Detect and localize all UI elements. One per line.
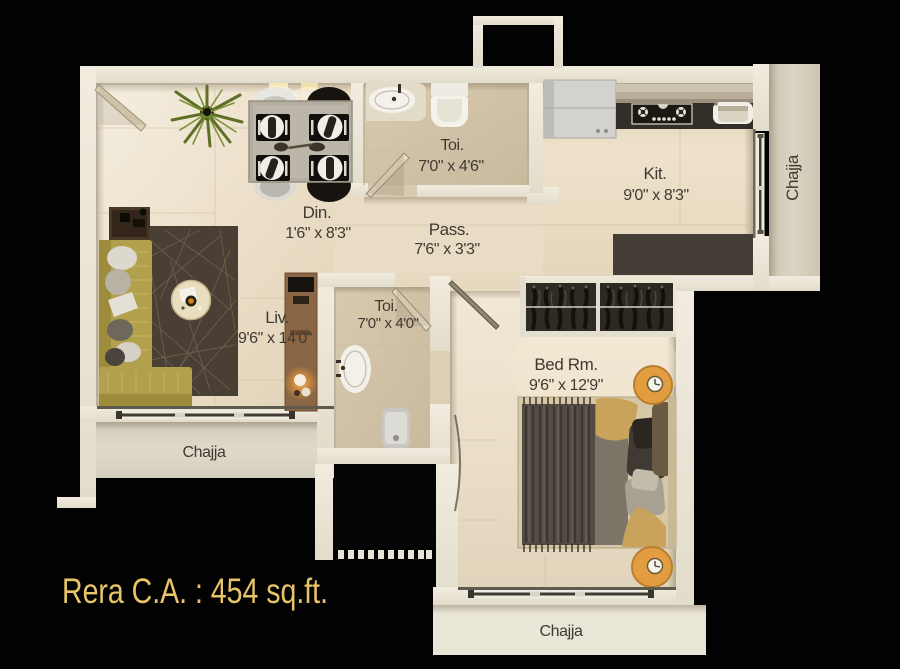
svg-text:9'6" x 12'9": 9'6" x 12'9" bbox=[529, 377, 603, 394]
svg-text:Rera C.A. : 454 sq.ft.: Rera C.A. : 454 sq.ft. bbox=[62, 572, 328, 611]
svg-text:9'0" x 8'3": 9'0" x 8'3" bbox=[623, 187, 689, 204]
svg-text:Din.: Din. bbox=[303, 203, 332, 222]
svg-text:Kit.: Kit. bbox=[644, 164, 667, 183]
svg-text:7'0" x 4'6": 7'0" x 4'6" bbox=[418, 158, 484, 175]
svg-text:Bed Rm.: Bed Rm. bbox=[534, 355, 597, 374]
svg-text:Chajja: Chajja bbox=[783, 154, 802, 201]
svg-text:7'0" x 4'0": 7'0" x 4'0" bbox=[357, 315, 418, 332]
svg-text:1'6" x 8'3": 1'6" x 8'3" bbox=[285, 225, 351, 242]
svg-text:7'6" x 3'3": 7'6" x 3'3" bbox=[414, 241, 480, 258]
svg-text:Liv.: Liv. bbox=[265, 308, 289, 327]
svg-text:9'6" x 14'0": 9'6" x 14'0" bbox=[238, 330, 312, 347]
svg-text:Toi.: Toi. bbox=[374, 298, 397, 315]
svg-text:Chajja: Chajja bbox=[183, 444, 226, 461]
svg-text:Pass.: Pass. bbox=[429, 220, 470, 239]
svg-text:Toi.: Toi. bbox=[440, 137, 463, 154]
svg-text:Chajja: Chajja bbox=[540, 623, 583, 640]
